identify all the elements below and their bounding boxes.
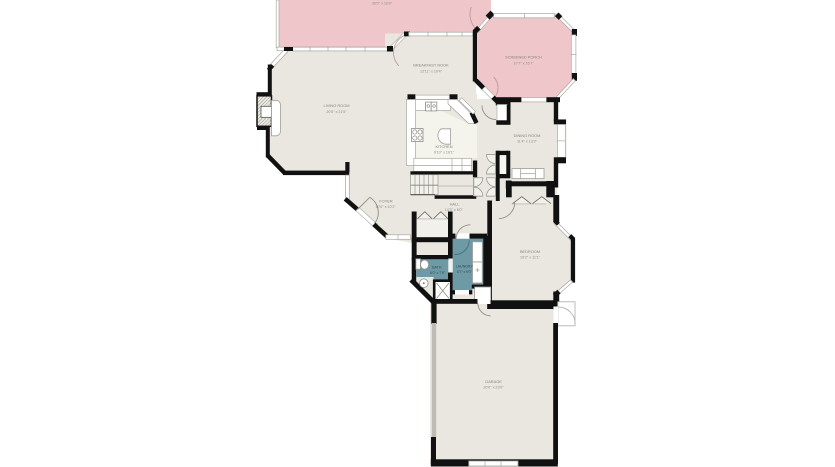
svg-text:GARAGE: GARAGE xyxy=(485,379,502,384)
svg-text:LAUNDRY: LAUNDRY xyxy=(456,264,474,268)
svg-text:LIVING ROOM: LIVING ROOM xyxy=(324,103,350,108)
svg-text:20'0" x 23'0": 20'0" x 23'0" xyxy=(483,386,504,390)
svg-text:9'10" x 16'1": 9'10" x 16'1" xyxy=(434,150,455,154)
svg-text:17'7" x 16'7": 17'7" x 16'7" xyxy=(513,62,534,66)
svg-text:KITCHEN: KITCHEN xyxy=(435,144,452,149)
svg-text:BREAKFAST NOOK: BREAKFAST NOOK xyxy=(413,63,449,68)
svg-text:36'0" x 16'0": 36'0" x 16'0" xyxy=(372,1,393,5)
svg-text:20'5" x 21'5": 20'5" x 21'5" xyxy=(326,110,347,114)
svg-text:10'2" x 11'1": 10'2" x 11'1" xyxy=(520,255,541,259)
svg-text:DINING ROOM: DINING ROOM xyxy=(514,133,541,138)
svg-text:13'11" x 10'4": 13'11" x 10'4" xyxy=(420,69,443,73)
svg-text:BATH: BATH xyxy=(432,266,442,270)
svg-text:6'7" x 9'0": 6'7" x 9'0" xyxy=(457,270,473,274)
svg-text:FOYER: FOYER xyxy=(379,198,393,203)
svg-text:SCREENED PORCH: SCREENED PORCH xyxy=(505,55,542,60)
svg-text:11'4" x 13'2": 11'4" x 13'2" xyxy=(517,139,538,143)
svg-text:6'0" x 7'6": 6'0" x 7'6" xyxy=(430,271,446,275)
svg-text:HALL: HALL xyxy=(450,202,461,207)
svg-text:10'0" x 10'2": 10'0" x 10'2" xyxy=(375,205,396,209)
svg-text:14'3" x 8'0": 14'3" x 8'0" xyxy=(445,208,464,212)
svg-text:BEDROOM: BEDROOM xyxy=(520,249,540,254)
